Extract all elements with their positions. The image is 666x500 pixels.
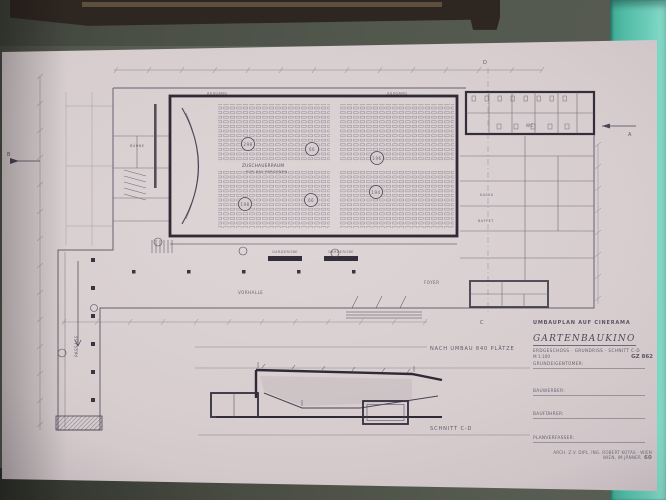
room-label-foyer: FOYER <box>424 280 439 285</box>
marker-b: B <box>7 152 11 158</box>
marker-b-arrow: B <box>7 152 40 164</box>
auditorium-label: ZUSCHAUERRAUM <box>242 163 284 168</box>
dimension-chain-right <box>595 142 601 304</box>
room-label-vorhalle: VORHALLE <box>238 290 263 295</box>
room-label-ausgang: AUSGANG <box>387 92 407 96</box>
cinerama-screen-arc <box>182 108 199 224</box>
room-label-passage: PASSAGE <box>74 335 79 357</box>
seat-count: 66 <box>309 147 315 152</box>
stamp-line2: WIEN, IM JÄNNER <box>603 455 641 460</box>
section-label: SCHNITT C-D <box>430 426 472 432</box>
project-title: UMBAUPLAN AUF CINERAMA <box>533 320 653 326</box>
seat-count: 298 <box>243 142 252 147</box>
photo-of-architectural-plan: D C A B <box>0 0 666 500</box>
section-drawing: SCHNITT C-D <box>195 347 530 435</box>
scale-label: M 1:100 <box>533 354 550 359</box>
signature-line-owner: GRUNDEIGENTÜMER: <box>533 362 645 369</box>
backstage-rooms <box>113 104 170 221</box>
wardrobe-counter <box>324 256 358 261</box>
plan-number: GZ 862 <box>631 354 653 360</box>
marker-a-arrow: A <box>602 124 636 139</box>
dimension-chain-bottom <box>62 319 427 325</box>
passage-wing <box>56 258 102 430</box>
signature-line-author: PLANVERFASSER: <box>533 436 645 443</box>
sheet-description: ERDGESCHOSS · GRUNDRISS · SCHNITT C-D <box>533 348 653 353</box>
room-label-garderobe: GARDEROBE <box>328 250 354 254</box>
drawing-sheet: D C A B <box>2 40 657 491</box>
marker-c: C <box>480 320 484 326</box>
drawing-area: D C A B <box>2 46 655 487</box>
auditorium-sublabel: FÜR 840 PERSONEN <box>246 169 288 174</box>
auditorium: 298 66 196 198 66 194 ZUSCHAUERRAUM FÜR … <box>170 96 457 236</box>
architect-stamp: ARCH. Z.V. DIPL. ING. ROBERT KOTAS · WIE… <box>500 450 652 461</box>
stamp-number: 60 <box>644 455 652 461</box>
frame-highlight <box>82 2 442 7</box>
signature-line-applicant: BAUWERBER: <box>533 389 645 396</box>
wardrobe-counter <box>268 256 302 261</box>
title-block: UMBAUPLAN AUF CINERAMA GARTENBAUKINO ERD… <box>533 320 653 360</box>
note-nach-umbau: NACH UMBAU 840 PLÄTZE <box>430 345 515 352</box>
room-label-ausgang: AUSGANG <box>207 92 227 96</box>
room-label-kassa: KASSA <box>480 193 494 197</box>
signature-line-builder: BAUFÜHRER: <box>533 412 645 419</box>
marker-d: D <box>483 60 488 66</box>
seat-count: 194 <box>371 190 380 195</box>
seat-count: 66 <box>308 198 314 203</box>
dimension-chain-left <box>37 74 43 430</box>
seat-count: 198 <box>240 202 249 207</box>
floor-plan-svg: D C A B <box>2 46 655 487</box>
room-label-garderobe: GARDEROBE <box>272 250 298 254</box>
room-label-wc: WC <box>526 123 534 128</box>
room-label-buehne: BÜHNE <box>130 143 144 148</box>
dimension-chain-top <box>114 67 544 73</box>
room-label-buffet: BUFFET <box>478 219 494 223</box>
marker-a: A <box>628 132 632 138</box>
seat-count: 196 <box>372 156 381 161</box>
plan-name: GARTENBAUKINO <box>533 334 636 346</box>
